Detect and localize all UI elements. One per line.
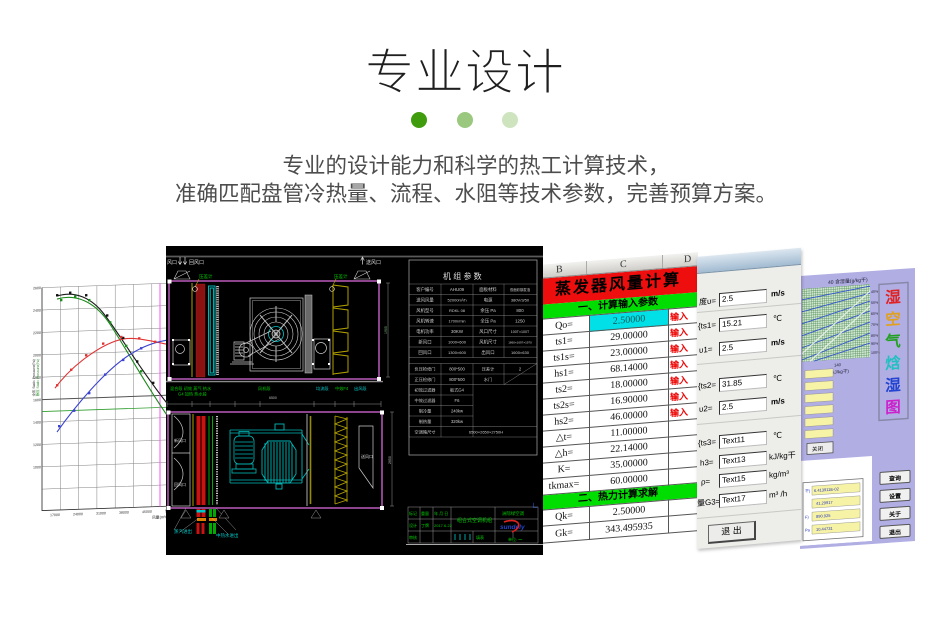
svg-text:图: 图 [885, 398, 900, 417]
svg-text:1400: 1400 [33, 421, 41, 425]
svg-text:RDKL 08: RDKL 08 [449, 308, 466, 313]
svg-text:6500×2650×2750H: 6500×2650×2750H [469, 430, 503, 435]
svg-text:240kw: 240kw [451, 409, 464, 414]
svg-text:380V/3/50: 380V/3/50 [511, 298, 530, 303]
svg-text:1200: 1200 [33, 443, 41, 447]
svg-text:2000: 2000 [33, 353, 41, 357]
svg-text:板式G4: 板式G4 [450, 387, 465, 394]
svg-text:回风口: 回风口 [418, 350, 431, 356]
svg-text:电源: 电源 [484, 297, 493, 304]
svg-text:新风口: 新风口 [174, 437, 186, 443]
svg-text:风口: 风口 [167, 260, 177, 266]
svg-text:余压 Pa: 余压 Pa [480, 307, 496, 314]
svg-text:制冷量: 制冷量 [419, 408, 432, 415]
svg-text:焓: 焓 [885, 353, 901, 373]
svg-text:F): F) [805, 514, 809, 519]
svg-text:风机转速: 风机转速 [416, 318, 434, 325]
svg-text:2017.6.22: 2017.6.22 [434, 523, 453, 528]
svg-text:空调箱尺寸: 空调箱尺寸 [415, 429, 436, 436]
svg-text:60%: 60% [871, 311, 879, 316]
svg-text:初效过滤器: 初效过滤器 [415, 387, 437, 394]
svg-text:丁牌: 丁牌 [421, 522, 429, 528]
svg-text:负压检修门: 负压检修门 [415, 366, 436, 373]
svg-text:回风口: 回风口 [189, 260, 204, 266]
svg-text:1000×600: 1000×600 [448, 340, 467, 345]
svg-text:送风风量: 送风风量 [416, 297, 434, 304]
svg-text:空: 空 [885, 309, 900, 329]
svg-text:2600: 2600 [33, 286, 41, 290]
svg-text:320kw: 320kw [451, 419, 464, 424]
svg-text:2650: 2650 [388, 456, 392, 464]
svg-text:800: 800 [516, 308, 524, 313]
svg-text:2: 2 [519, 367, 522, 372]
svg-text:70%: 70% [871, 322, 879, 327]
svg-text:压差计: 压差计 [482, 366, 495, 373]
svg-text:回风口: 回风口 [174, 482, 186, 487]
svg-text:800*500: 800*500 [449, 367, 465, 372]
svg-text:审核: 审核 [409, 534, 417, 540]
svg-text:均流段: 均流段 [316, 385, 329, 392]
svg-text:出风段: 出风段 [354, 385, 367, 392]
svg-text:气: 气 [884, 331, 901, 351]
svg-text:1300×600: 1300×600 [448, 350, 467, 355]
svg-text:890.925: 890.925 [816, 513, 831, 519]
svg-text:出风口: 出风口 [481, 349, 494, 356]
svg-text:洲际绿空调: 洲际绿空调 [502, 510, 525, 517]
svg-text:中热水进出: 中热水进出 [216, 532, 239, 539]
svg-text:2400: 2400 [33, 309, 41, 313]
svg-text:压差计: 压差计 [334, 273, 348, 280]
svg-text:双面彩钢发泡: 双面彩钢发泡 [510, 287, 531, 292]
svg-text:1600: 1600 [33, 398, 41, 402]
svg-text:AHU09: AHU09 [450, 287, 465, 292]
svg-text:送风口: 送风口 [361, 453, 373, 459]
svg-text:1860×1697×1970: 1860×1697×1970 [508, 341, 532, 345]
svg-text:2200: 2200 [33, 331, 41, 335]
svg-text:单位: ━: 单位: ━ [508, 536, 522, 542]
svg-text:蒸汽进出: 蒸汽进出 [174, 528, 192, 535]
svg-text:1250: 1250 [515, 319, 525, 324]
svg-text:湿: 湿 [884, 288, 901, 307]
svg-text:湿: 湿 [884, 376, 901, 395]
svg-text:乚: 乚 [532, 503, 538, 510]
svg-text:电机功率: 电机功率 [416, 328, 434, 335]
svg-text:100T×100T: 100T×100T [511, 330, 530, 334]
svg-text:风机型号: 风机型号 [416, 307, 434, 314]
svg-text:正压检修门: 正压检修门 [415, 376, 436, 383]
svg-text:45000: 45000 [142, 510, 152, 514]
svg-text:客户编号: 客户编号 [416, 286, 434, 293]
svg-text:6500: 6500 [269, 396, 277, 400]
svg-text:90%: 90% [871, 341, 879, 346]
svg-text:组合式空调机组: 组合式空调机组 [457, 517, 492, 524]
svg-text:静压 Static Pressure(Pa): 静压 Static Pressure(Pa) [35, 359, 40, 396]
svg-text:标记: 标记 [409, 510, 417, 516]
svg-text:1905: 1905 [384, 326, 388, 334]
svg-text:1000: 1000 [33, 465, 41, 469]
svg-text:40%: 40% [871, 289, 879, 294]
svg-text:机 组 参 数: 机 组 参 数 [443, 271, 482, 281]
svg-text:1700r/min: 1700r/min [449, 320, 466, 324]
svg-text:送风口: 送风口 [366, 259, 381, 266]
svg-text:压差计: 压差计 [199, 273, 213, 280]
svg-text:24000: 24000 [73, 512, 83, 516]
svg-text:sundely: sundely [500, 524, 525, 531]
svg-text:Pa: Pa [805, 527, 811, 532]
svg-text:800*500: 800*500 [449, 377, 465, 382]
svg-text:38000: 38000 [119, 511, 129, 515]
svg-text:50%: 50% [871, 300, 879, 305]
svg-text:G4 加热 热水段: G4 加热 热水段 [178, 391, 208, 398]
svg-text:52000m³/h: 52000m³/h [447, 298, 466, 303]
svg-text:31000: 31000 [96, 511, 106, 515]
svg-text:重量: 重量 [421, 510, 429, 516]
svg-text:30KW: 30KW [451, 329, 464, 334]
svg-text:全压 Pa: 全压 Pa [480, 318, 496, 325]
svg-text:风机段: 风机段 [258, 385, 271, 392]
svg-text:风口尺寸: 风口尺寸 [479, 328, 497, 335]
svg-text:制热量: 制热量 [419, 418, 432, 425]
svg-text:1600×630: 1600×630 [511, 350, 530, 355]
svg-text:年 月 日: 年 月 日 [434, 510, 448, 516]
svg-text:80%: 80% [871, 333, 879, 338]
svg-text:新风口: 新风口 [418, 339, 431, 346]
svg-text:F6: F6 [455, 398, 461, 403]
svg-text:水门: 水门 [484, 376, 492, 383]
svg-text:40 含湿量(g/kg干): 40 含湿量(g/kg干) [828, 276, 868, 286]
svg-text:140: 140 [834, 362, 842, 368]
svg-text:风机尺寸: 风机尺寸 [479, 339, 497, 346]
svg-text:填表: 填表 [476, 534, 484, 540]
svg-text:设计: 设计 [409, 522, 417, 528]
svg-text:17000: 17000 [50, 513, 60, 517]
svg-text:中效F4: 中效F4 [335, 385, 349, 392]
svg-text:干): 干) [805, 488, 811, 493]
svg-text:中效过滤器: 中效过滤器 [415, 397, 437, 404]
svg-text:面板材料: 面板材料 [479, 286, 497, 293]
